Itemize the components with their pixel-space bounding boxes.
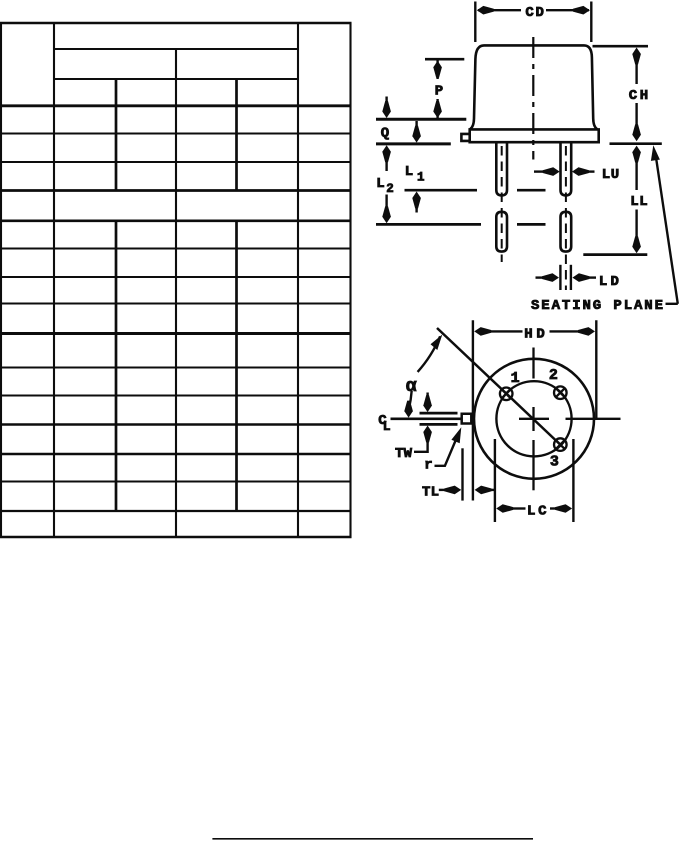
svg-text:3: 3 [550,453,559,470]
svg-text:P: P [435,84,443,100]
svg-text:HD: HD [524,327,545,343]
svg-text:2: 2 [549,367,558,384]
svg-text:1: 1 [511,370,520,387]
svg-text:L: L [376,176,384,192]
svg-text:1: 1 [417,170,425,184]
svg-text:L: L [383,419,391,434]
svg-text:LD: LD [599,274,619,290]
svg-text:r: r [424,458,432,474]
svg-text:SEATING PLANE: SEATING PLANE [531,298,663,314]
svg-text:LC: LC [527,503,547,519]
svg-text:α: α [406,377,417,397]
svg-text:CD: CD [525,5,544,21]
svg-text:L: L [405,164,413,180]
svg-text:TW: TW [395,446,413,462]
svg-text:TL: TL [422,485,439,501]
svg-text:LU: LU [602,167,620,183]
svg-text:CH: CH [629,88,649,104]
svg-text:Q: Q [381,125,389,141]
svg-text:2: 2 [386,182,394,196]
svg-text:LL: LL [630,194,648,210]
